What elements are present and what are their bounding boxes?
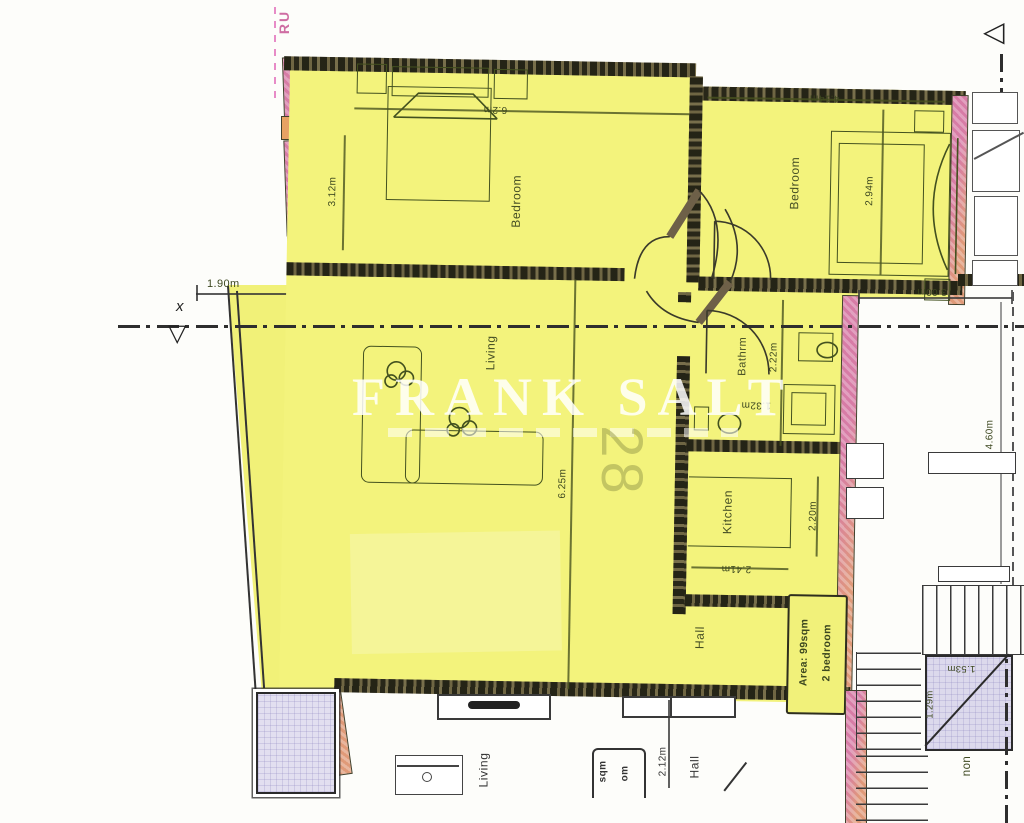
stair-caption-fragment: non	[961, 756, 973, 776]
stairhall-right-boundary	[1012, 286, 1014, 586]
area-box	[786, 594, 848, 715]
watermark-brand: FRANK SALT	[352, 366, 794, 428]
lower-sideboard-line	[397, 765, 459, 767]
terrace-paving	[256, 692, 336, 794]
section-triangle-down-icon: ▽	[168, 322, 186, 346]
bed1-pillow-lines	[394, 93, 498, 119]
stair-rail-top	[938, 566, 1010, 582]
section-line-bottom-right	[1005, 658, 1008, 823]
kitchen-depth-dim: 2.20m	[807, 501, 819, 531]
lower-sideboard-knob	[422, 772, 432, 782]
balcony-width-dim: 1.90m	[207, 278, 240, 290]
lower-hall-label: Hall	[688, 755, 702, 778]
lower-window-lens	[468, 701, 520, 709]
dim-tick-stairhall-l	[858, 290, 860, 304]
area-line1: Area: 99sqm	[797, 607, 811, 697]
bedroom2-label: Bedroom	[787, 157, 802, 210]
kitchen-width-dim: 2.41m	[721, 563, 751, 575]
neighbour-furniture-3	[974, 196, 1018, 256]
stairhall-depth-dim: 4.60m	[984, 420, 995, 450]
lower-area-fragment-1: sqm	[597, 761, 608, 783]
lower-door-frame-2	[670, 696, 736, 718]
lift-width-dim: 1.53m	[947, 663, 975, 674]
stairhall-depth-line	[1000, 302, 1002, 584]
bedroom1-label: Bedroom	[509, 175, 524, 228]
lower-door-frame-1	[622, 696, 674, 718]
shaft-window-1	[846, 443, 884, 479]
entrance-leaves	[668, 190, 731, 323]
watermark-subline	[388, 428, 738, 437]
stair-treads-lower	[856, 755, 928, 821]
lower-area-fragment-2: om	[619, 766, 630, 782]
lift-depth-dim: 1.29m	[925, 690, 936, 718]
stair-treads-upper	[922, 585, 1024, 655]
kitchen-label: Kitchen	[720, 490, 735, 534]
stair-treads-left	[856, 652, 921, 750]
section-triangle-left-icon: ◁	[983, 18, 1005, 46]
bedroom2-door-arc	[714, 221, 772, 280]
bedroom1-width-dim: 6.2m	[483, 104, 507, 115]
neighbour-furniture-2	[972, 130, 1020, 192]
neighbour-furniture-4	[972, 260, 1018, 286]
stairhall-width-dim: 3.00m	[917, 286, 947, 297]
stair-landing	[928, 452, 1016, 474]
hall-label: Hall	[692, 626, 706, 649]
shaft-window-2	[846, 487, 884, 519]
lower-door-swing	[723, 762, 746, 791]
bed2-headboard	[932, 138, 958, 274]
bedroom1-depth-dim: 3.12m	[327, 177, 339, 207]
section-marker-x: x	[176, 298, 184, 315]
dim-line-stairhall-width	[858, 297, 1012, 299]
neighbour-furniture-1	[972, 92, 1018, 124]
area-line2: 2 bedroom	[820, 608, 834, 698]
lower-living-label: Living	[476, 753, 490, 788]
bedroom2-width-dim: 4.14m	[809, 92, 839, 104]
bedroom2-depth-dim: 2.94m	[864, 176, 876, 206]
lower-dim: 2.12m	[657, 747, 668, 777]
balcony-dim-tick	[196, 285, 198, 301]
floor-plan: 1.90m RU	[0, 0, 1024, 823]
corner-text-fragment: RU	[276, 10, 292, 34]
sink-basin	[817, 342, 838, 358]
unit-number: 28	[588, 425, 655, 498]
living-depth-dim: 6.25m	[557, 469, 569, 499]
section-line	[118, 325, 1024, 328]
